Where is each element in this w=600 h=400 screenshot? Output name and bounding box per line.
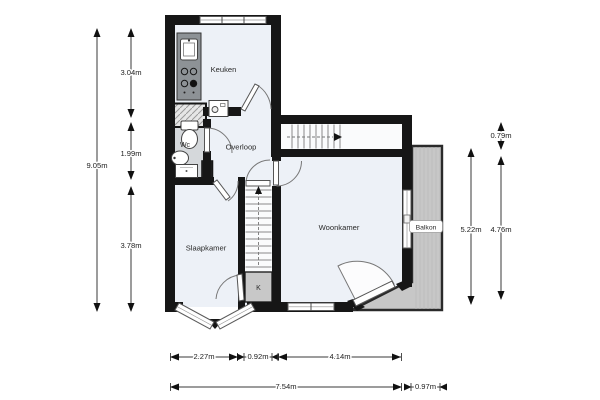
washbasin-icon xyxy=(172,151,189,165)
room-label-slaapkamer: Slaapkamer xyxy=(186,244,227,253)
floor-stairwell-up xyxy=(281,124,402,149)
dim-bottom-total: 7.54m xyxy=(170,382,402,391)
window-balcony-door xyxy=(403,190,411,248)
dim-right-top: 0.79m xyxy=(490,122,511,150)
room-label-wc: Wc xyxy=(180,142,191,149)
dim-bottom-seg-2: 0.92m xyxy=(237,352,279,361)
window-woonkamer-bottom xyxy=(288,303,334,311)
svg-text:Balkon: Balkon xyxy=(416,225,437,232)
svg-text:1.99m: 1.99m xyxy=(120,149,141,158)
room-label-overloop: Overloop xyxy=(226,143,257,152)
sink-icon xyxy=(181,39,198,60)
wall-woonkamer-left-a xyxy=(272,157,281,161)
wall-woonkamer-left-b xyxy=(272,186,281,302)
dim-right-inner: 4.76m xyxy=(490,156,511,300)
dim-left-total: 9.05m xyxy=(86,28,107,312)
svg-text:5.22m: 5.22m xyxy=(460,225,481,234)
svg-text:4.14m: 4.14m xyxy=(329,352,350,361)
svg-text:7.54m: 7.54m xyxy=(275,382,296,391)
dim-bottom-right: 0.97m xyxy=(404,382,447,391)
dim-left-seg-1: 3.04m xyxy=(120,28,141,118)
svg-text:9.05m: 9.05m xyxy=(86,161,107,170)
wall-left xyxy=(165,15,175,312)
dim-left-seg-3: 3.78m xyxy=(120,186,141,312)
svg-text:2.27m: 2.27m xyxy=(193,352,214,361)
dim-right-total: 5.22m xyxy=(460,148,481,305)
svg-text:4.76m: 4.76m xyxy=(490,225,511,234)
dim-bottom-seg-1: 2.27m xyxy=(170,352,238,361)
svg-text:3.04m: 3.04m xyxy=(120,68,141,77)
wall-stairs-south xyxy=(281,149,412,157)
window-kitchen-top xyxy=(200,17,266,24)
svg-text:0.92m: 0.92m xyxy=(247,352,268,361)
wall-wc-bottom xyxy=(165,177,214,185)
svg-text:3.78m: 3.78m xyxy=(120,241,141,250)
room-label-balkon: Balkon xyxy=(410,221,443,233)
wall-kitchen-right xyxy=(271,15,281,157)
wall-wing-north xyxy=(271,115,412,124)
cabinet-icon xyxy=(176,165,198,178)
room-label-keuken: Keuken xyxy=(211,65,237,74)
dim-left-seg-2: 1.99m xyxy=(120,122,141,180)
floorplan-canvas: Keuken Overloop Wc Slaapkamer Woonkamer … xyxy=(0,0,600,400)
room-label-kast: K xyxy=(256,285,261,292)
svg-text:0.97m: 0.97m xyxy=(415,382,436,391)
floorplan-page: Keuken Overloop Wc Slaapkamer Woonkamer … xyxy=(0,0,600,400)
wall-wc-right-a xyxy=(203,119,211,128)
room-label-woonkamer: Woonkamer xyxy=(319,223,360,232)
appliance-icon xyxy=(209,101,228,117)
dim-bottom-seg-3: 4.14m xyxy=(278,352,402,361)
svg-text:0.79m: 0.79m xyxy=(490,131,511,140)
